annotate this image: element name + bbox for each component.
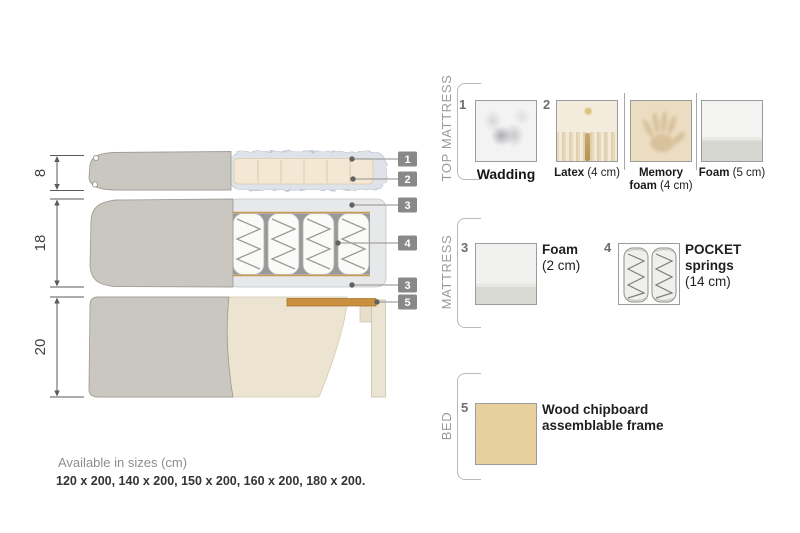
chipboard-noise-graphic: [476, 404, 537, 465]
chipboard-image: [475, 403, 537, 465]
memory-foam-texture: [631, 101, 691, 161]
label-pocket-springs: POCKET springs (14 cm): [685, 242, 773, 291]
top-mattress-cover: [89, 152, 231, 191]
callout-badge-3-top: 3: [404, 200, 410, 212]
top-mattress-section: [89, 152, 386, 191]
label-chipboard: Wood chipboard assemblable frame: [542, 402, 702, 434]
callout-badge-2: 2: [404, 174, 410, 186]
label-foam-2cm: Foam(2 cm): [542, 242, 612, 274]
mattress-cover: [90, 199, 233, 287]
dimension-bed-value: 20: [32, 339, 49, 356]
wadding-texture: [476, 101, 536, 161]
foam-5cm-texture: [702, 101, 762, 161]
bed-base-cover: [89, 297, 233, 397]
foam-2cm-texture: [476, 244, 536, 304]
bed-leg: [372, 300, 386, 397]
wadding-image: [475, 100, 537, 162]
callout-badge-3-bottom: 3: [404, 280, 410, 292]
dimension-mattress-value: 18: [32, 235, 49, 252]
cover-eyelet-bottom: [92, 182, 97, 187]
legend-divider-1: [624, 93, 625, 170]
hand-imprint-graphic: [631, 101, 692, 162]
section-title-top-mattress: TOP MATTRESS: [439, 73, 455, 183]
label-latex: Latex (4 cm): [538, 167, 636, 180]
bed-base-section: [89, 297, 386, 397]
legend-num-latex: 2: [543, 97, 550, 112]
available-sizes-list: 120 x 200, 140 x 200, 150 x 200, 160 x 2…: [56, 474, 365, 488]
foam-2cm-image: [475, 243, 537, 305]
chipboard-texture: [476, 404, 536, 464]
bed-frame-fabric: [227, 297, 347, 397]
cover-eyelet-top: [93, 155, 98, 160]
callout-badge-5: 5: [404, 297, 410, 309]
legend-num-wadding: 1: [459, 97, 466, 112]
bed-cross-section-diagram: 8 18 20: [0, 0, 435, 533]
legend-num-foam-2cm: 3: [461, 240, 468, 255]
latex-image: [556, 100, 618, 162]
pocket-springs-image: [618, 243, 680, 305]
memory-foam-image: [630, 100, 692, 162]
bed-construction-infographic: 8 18 20: [0, 0, 800, 533]
available-sizes-title: Available in sizes (cm): [58, 455, 187, 470]
foam-5cm-image: [701, 100, 763, 162]
label-foam-5cm: Foam (5 cm): [694, 167, 770, 180]
pocket-springs-graphic: [619, 244, 680, 305]
callout-badges: 1 2 3 4 3 5: [398, 152, 417, 310]
legend-num-pocket-springs: 4: [604, 240, 611, 255]
dimension-marks: [50, 156, 84, 398]
dimension-top-mattress-value: 8: [32, 169, 49, 177]
frame-support-block: [360, 306, 372, 322]
latex-texture: [557, 101, 617, 161]
callout-badge-1: 1: [404, 154, 410, 166]
section-title-mattress: MATTRESS: [439, 217, 455, 327]
callout-badge-4: 4: [404, 238, 411, 250]
legend-divider-2: [696, 93, 697, 170]
section-title-bed: BED: [439, 371, 455, 481]
legend-num-chipboard: 5: [461, 400, 468, 415]
wooden-slat: [287, 299, 376, 307]
pocket-springs-texture: [619, 244, 679, 304]
label-memory-foam: Memory foam (4 cm): [625, 167, 697, 193]
